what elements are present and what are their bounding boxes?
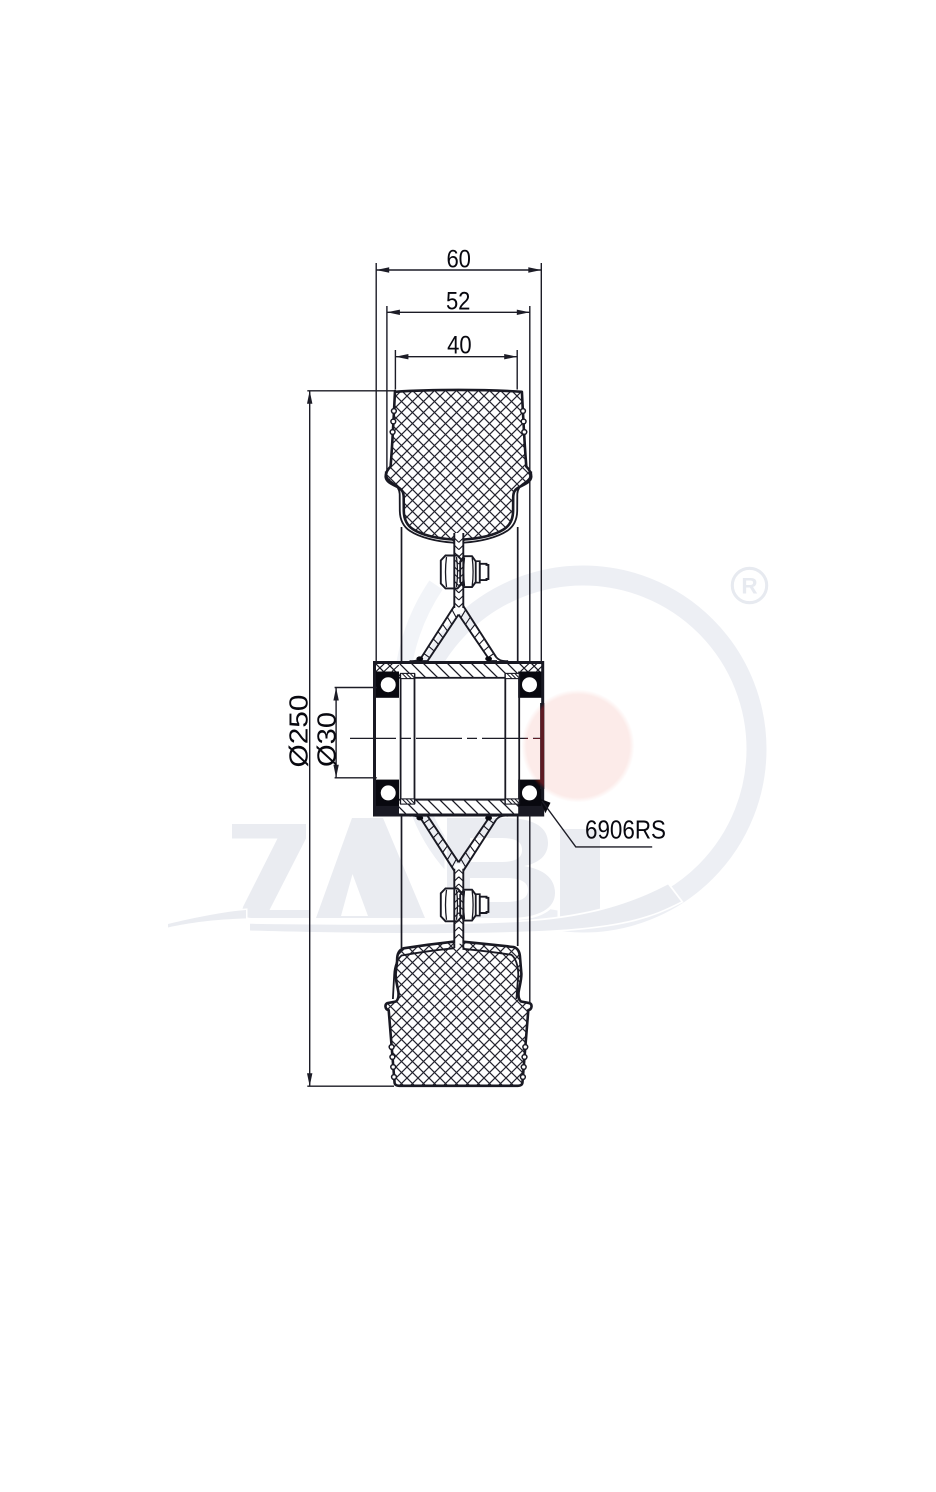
svg-text:60: 60 [446, 246, 471, 274]
svg-text:40: 40 [447, 332, 472, 360]
svg-text:Ø250: Ø250 [286, 695, 314, 768]
svg-text:Ø30: Ø30 [314, 712, 342, 767]
svg-text:6906RS: 6906RS [585, 815, 666, 845]
svg-text:R: R [741, 574, 757, 599]
svg-text:52: 52 [446, 287, 471, 315]
